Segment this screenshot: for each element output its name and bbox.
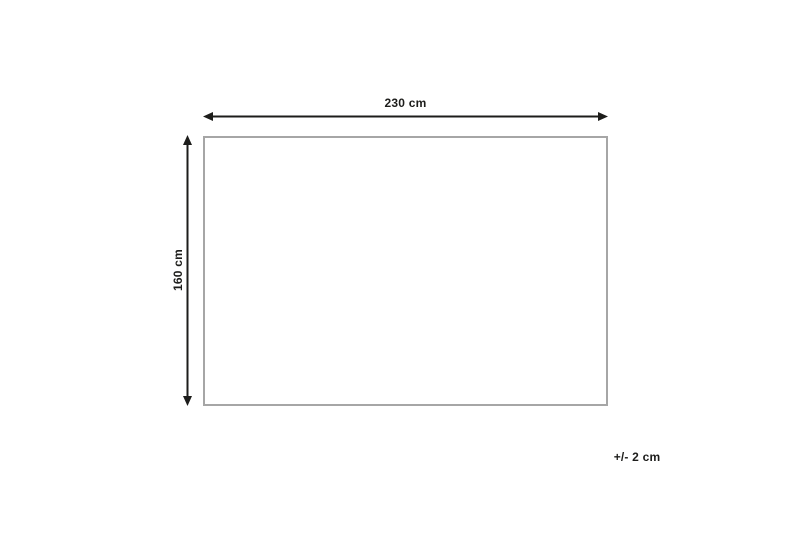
width-dimension-arrow: [203, 110, 608, 123]
dimension-rectangle: [203, 136, 608, 406]
arrowhead-up-icon: [183, 135, 192, 145]
dimension-diagram: 230 cm 160 cm +/- 2 cm: [0, 0, 800, 533]
arrowhead-left-icon: [203, 112, 213, 121]
width-label: 230 cm: [203, 96, 608, 110]
arrowhead-right-icon: [598, 112, 608, 121]
arrowhead-down-icon: [183, 396, 192, 406]
tolerance-label: +/- 2 cm: [597, 450, 677, 464]
height-label: 160 cm: [171, 249, 185, 291]
